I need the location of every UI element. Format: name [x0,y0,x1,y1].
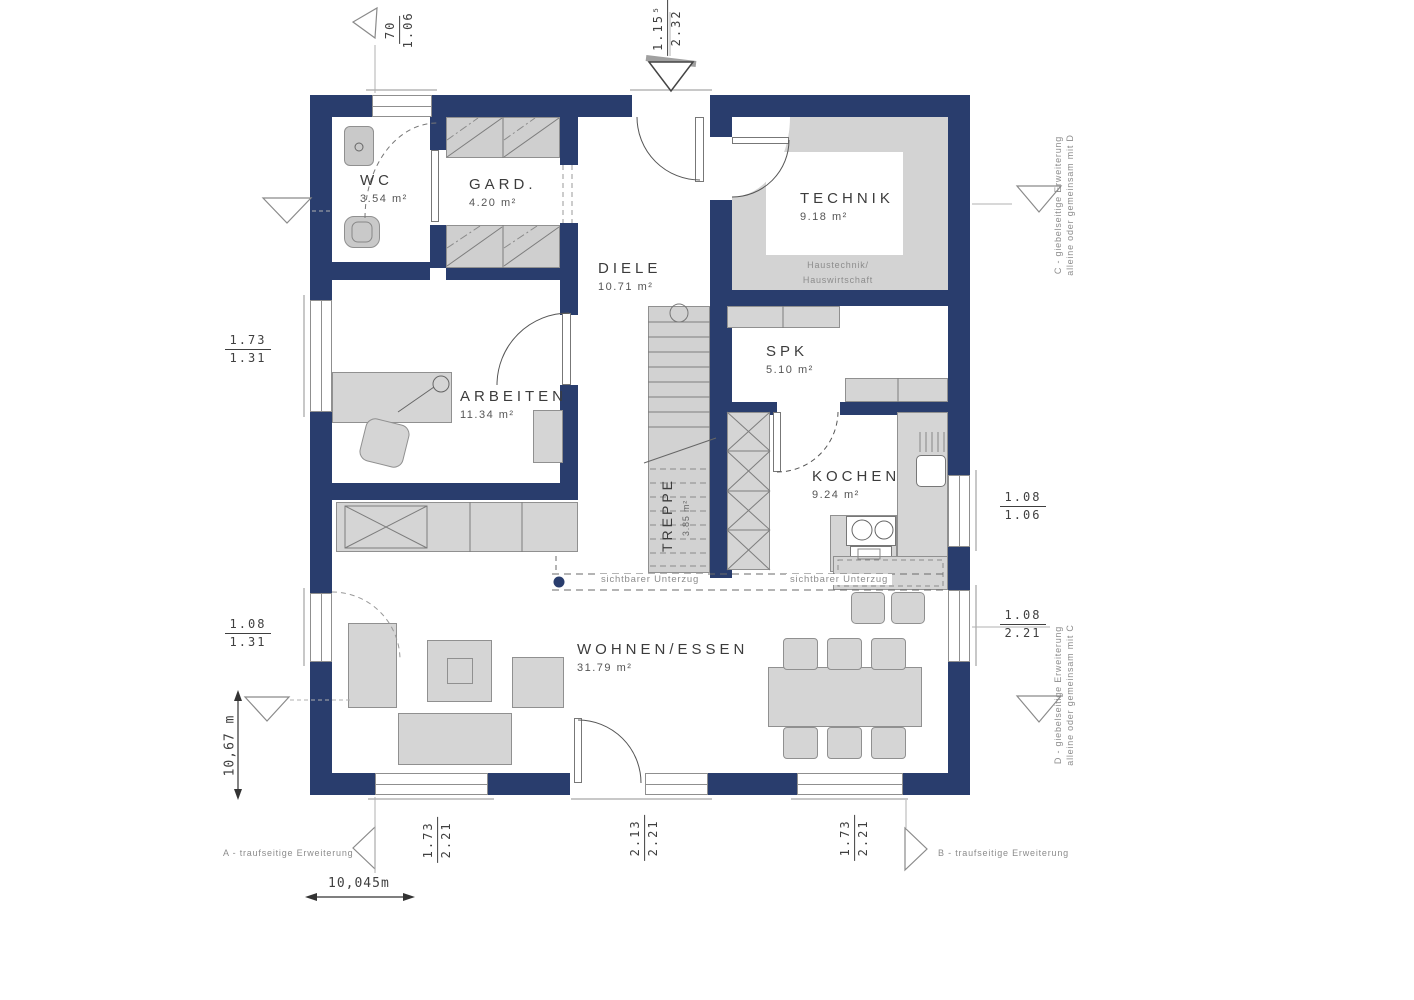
entrance-arrow-shadow [646,58,696,64]
height-dim-arrow-bottom [234,789,242,800]
dim-right-lower: 1.08 2.21 [990,607,1056,643]
room-name: DIELE [598,260,661,277]
technik-note-line1: Haustechnik/ [788,258,888,273]
wall-gard-diele-lower [560,223,578,262]
wc-door-leaf [431,150,439,222]
room-area: 10.71 m² [598,281,661,293]
kochen-door-arc [777,412,838,472]
triangle-left-bottom [245,697,289,721]
width-dim-arrow-left [305,893,317,901]
dim-top-left: 70 1.06 [382,0,418,60]
room-label-spk: SPK 5.10 m² [766,343,814,376]
wall-top-2 [432,95,632,117]
room-area: 3.54 m² [360,193,408,205]
wall-diele-technik-lower [710,200,732,290]
dim-num: 1.15⁵ [650,0,668,56]
dining-chair-5 [827,727,862,759]
room-area: 9.24 m² [812,489,900,501]
dim-num: 1.08 [1000,607,1047,625]
dim-bottom-right: 1.73 2.21 [837,805,873,871]
overall-width-label: 10,045m [328,876,390,891]
triangle-left-mid [263,198,311,223]
width-dim-arrow-right [403,893,415,901]
wall-right-3 [948,662,970,795]
wall-left-1 [310,95,332,300]
room-label-gard: GARD. 4.20 m² [469,176,537,209]
kitchen-counter-right [897,412,948,572]
annotation-c1: C - giebelseitige Erweiterung [1053,125,1063,285]
sideboard [336,502,578,552]
dim-num: 1.08 [225,616,272,634]
window-living-mid [645,773,708,795]
wall-diele-technik-upper [710,117,732,137]
staircase [648,306,710,573]
dim-num: 1.73 [420,816,438,863]
dim-num: 1.08 [1000,489,1047,507]
wall-bottom-3 [708,773,797,795]
room-name: SPK [766,343,808,360]
window-living-left [375,773,488,795]
dim-den: 1.06 [1000,507,1047,524]
window-dining-bottom [797,773,903,795]
wall-left-3 [310,662,332,795]
room-label-kochen: KOCHEN 9.24 m² [812,468,900,501]
annotation-d2: alleine oder gemeinsam mit C [1065,615,1075,775]
dining-table [768,667,922,727]
wall-right-1 [948,95,970,475]
spk-shelf-right [845,378,948,402]
sofa-bottom [398,713,512,765]
room-name: KOCHEN [812,468,900,485]
coffee-table-inner [447,658,473,684]
room-name: GARD. [469,176,537,193]
dim-den: 2.21 [856,814,873,861]
wall-technik-bottom [710,288,948,306]
wc-sink [344,126,374,166]
dining-chair-3 [871,638,906,670]
wardrobe-top [446,117,560,158]
annotation-a: A - traufseitige Erweiterung [223,848,353,858]
window-wc [372,95,432,117]
window-kochen [948,475,970,547]
room-name: WC [360,172,393,189]
room-area: 31.79 m² [577,662,748,674]
wall-below-wc [332,262,430,280]
room-area: 4.20 m² [469,197,537,209]
dim-den: 1.31 [225,634,272,651]
room-name: ARBEITEN [460,388,567,405]
wall-arbeiten-diele-upper [560,280,578,315]
room-name: WOHNEN/ESSEN [577,641,748,658]
room-label-wc: WC 3.54 m² [360,172,408,205]
kitchen-tall-cabinet [727,412,770,570]
dim-den: 1.31 [225,350,272,367]
sofa-left [348,623,397,708]
annotation-c2: alleine oder gemeinsam mit D [1065,125,1075,285]
dim-den: 2.21 [439,816,456,863]
dining-chair-6 [871,727,906,759]
wall-right-2 [948,547,970,590]
room-label-wohnen: WOHNEN/ESSEN 31.79 m² [577,641,748,674]
dim-bottom-left: 1.73 2.21 [420,807,456,873]
kitchen-sink [916,455,946,487]
column-dot [554,577,565,588]
armchair [512,657,564,708]
dim-den: 2.21 [1000,625,1047,642]
triangle-bottom-right [905,828,927,870]
window-arbeiten [310,300,332,412]
dim-num: 1.73 [837,814,855,861]
technik-note: Haustechnik/ Hauswirtschaft [788,258,888,288]
room-label-technik: TECHNIK 9.18 m² [800,190,894,223]
window-wohnen-left [310,593,332,662]
dining-chair-4 [783,727,818,759]
technik-door-leaf [732,137,789,144]
treppe-area: 3.85 m² [681,480,691,556]
dim-den: 2.32 [669,4,686,51]
entrance-door-leaf [695,117,704,182]
dim-num: 1.73 [225,332,272,350]
technik-note-line2: Hauswirtschaft [788,273,888,288]
desk-chair [357,416,411,470]
room-area: 9.18 m² [800,211,894,223]
room-name: TECHNIK [800,190,894,207]
annotation-b: B - traufseitige Erweiterung [938,848,1069,858]
wall-wc-gard-lower [430,225,446,268]
desk [332,372,452,423]
wc-toilet [344,216,380,248]
room-area: 11.34 m² [460,409,567,421]
unterzug-label-2: sichtbarer Unterzug [786,574,892,585]
kochen-door-leaf [773,412,781,472]
bar-chair-2 [891,592,925,624]
bar-chair-1 [851,592,885,624]
room-label-diele: DIELE 10.71 m² [598,260,661,293]
entrance-door-arc [637,117,700,180]
room-area: 5.10 m² [766,364,814,376]
wall-wc-gard-upper [430,117,446,150]
triangle-bottom-left [353,827,375,869]
dim-left-lower: 1.08 1.31 [215,616,281,652]
wall-arbeiten-bottom [332,483,578,500]
unterzug-label-1: sichtbarer Unterzug [597,574,703,585]
dim-bottom-mid: 2.13 2.21 [627,805,663,871]
dim-den: 1.06 [401,6,418,53]
dining-chair-1 [783,638,818,670]
wall-bottom-2 [488,773,570,795]
room-label-treppe: TREPPE [659,455,675,575]
triangle-top-left [353,8,377,38]
dim-den: 2.21 [646,814,663,861]
patio-door-leaf [574,718,582,783]
wall-top-3 [710,95,970,117]
height-dim-arrow-top [234,690,242,701]
window-essen-right [948,590,970,662]
dim-top-mid: 1.15⁵ 2.32 [650,0,686,58]
floor-plan: WC 3.54 m² GARD. 4.20 m² DIELE 10.71 m² … [0,0,1414,1000]
wall-left-2 [310,412,332,593]
dim-num: 70 [382,16,400,44]
wall-gard-diele-upper [560,117,578,165]
dim-left-upper: 1.73 1.31 [215,332,281,368]
room-label-arbeiten: ARBEITEN 11.34 m² [460,388,567,421]
spk-shelf-top [727,306,840,328]
overall-height-label: 10,67 m [223,701,238,791]
arbeiten-door-leaf [562,313,571,385]
room-name: TREPPE [659,478,675,552]
patio-door-arc [578,720,641,783]
wardrobe-bottom [446,225,560,268]
dim-right-upper: 1.08 1.06 [990,489,1056,525]
annotation-d1: D - giebelseitige Erweiterung [1053,615,1063,775]
arbeiten-door-arc [497,313,569,385]
room-area: 3.85 m² [681,500,691,536]
entrance-arrow [649,62,693,91]
dim-num: 2.13 [627,814,645,861]
kitchen-stove [846,516,896,546]
dining-chair-2 [827,638,862,670]
